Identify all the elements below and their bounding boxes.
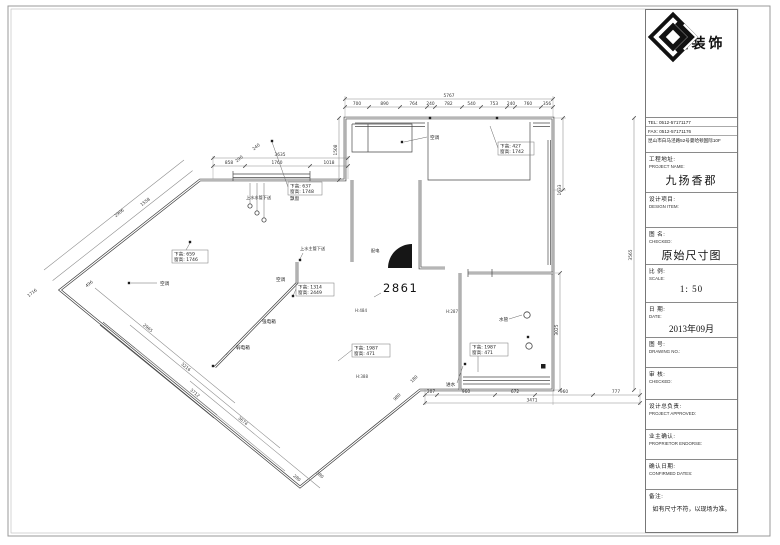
weak-current-box-label: 弱电箱 [236, 344, 250, 351]
dim-label: 1508 [333, 144, 339, 155]
dim-label: 540 [467, 101, 475, 107]
tb-row-date: 日 期: DATE: 2013年09月 [646, 302, 737, 337]
tb-row-project-name: 工程地址: PROJECT NAME: 九扬香郡 [646, 152, 737, 192]
drawing-title-value: 原始尺寸图 [649, 247, 734, 263]
scale-value: 1: 50 [649, 284, 734, 294]
dim-label: 380 [315, 470, 325, 480]
dim-label: 1760 [272, 160, 283, 166]
tb-row-proprietor-endorse: 业主确认: PROPRIETOR ENDORSE: [646, 429, 737, 459]
window-lines [100, 122, 551, 418]
tb-row-confirmed-dates: 确认日期: CONFIRMED DATES: [646, 459, 737, 489]
row-label-cn: 比 例: [649, 267, 734, 275]
title-block: 恒钻装饰 TEL: 0512-57171177 FAX: 0512-571711… [645, 9, 738, 533]
dim-label: 207 [427, 389, 435, 395]
window-sill-label: 下高: 1314 [298, 284, 322, 291]
pipe-symbol [524, 312, 530, 318]
ac-label: 空调 [430, 134, 440, 141]
window-height-label: 窗高: 471 [472, 349, 493, 356]
dim-label: 1716 [26, 287, 39, 299]
dim-label: 3025 [554, 324, 560, 335]
exterior-walls [60, 118, 553, 487]
dim-label: 3635 [275, 152, 286, 158]
dim-label: 496 [84, 279, 94, 289]
row-label-en: DRAWING NO.: [649, 349, 734, 354]
dim-label: 672 [511, 389, 519, 395]
row-label-cn: 设计项目: [649, 195, 734, 203]
company-tel: TEL: 0512-57171177 [646, 118, 737, 127]
tb-row-remark: 备注: 如有尺寸不符，以现场为准。 [646, 489, 737, 532]
row-label-cn: 业主确认: [649, 432, 734, 440]
dim-label: 290 [234, 154, 244, 164]
window-annotation: 下高: 637 窗高: 1748 飘窗 [288, 182, 322, 202]
dim-label: 180 [409, 374, 419, 384]
window-annotation: 下高: 659 窗高: 1746 [172, 250, 208, 263]
row-label-en: PROJECT APPROVED: [649, 411, 734, 416]
company-fax: FAX: 0512-57171176 [646, 127, 737, 136]
date-value: 2013年09月 [649, 322, 734, 335]
dim-label: 760 [524, 101, 532, 107]
water-inlet-label: 进水 [446, 381, 456, 388]
tb-row-drawing-no: 图 号: DRAWING NO.: [646, 337, 737, 367]
pipe-symbol [262, 218, 266, 222]
dim-label: 1633 [557, 184, 563, 195]
tb-row-checked: 审 核: CHECKED: [646, 367, 737, 399]
water-pipe-note: 上水水管下送 [246, 194, 272, 201]
dim-label: 2965 [142, 322, 154, 334]
ac-label: 空调 [276, 276, 286, 283]
dim-label: 980 [392, 392, 402, 402]
row-label-cn: 确认日期: [649, 462, 734, 470]
pipe-symbol [526, 343, 532, 349]
window-annotation: 下高: 1314 窗高: 2449 [296, 283, 334, 296]
row-label-cn: 日 期: [649, 305, 734, 313]
window-annotation: 下高: 1987 窗高: 471 [470, 343, 508, 356]
diagonal-dimensions: 1558 2906 290 240 496 1716 2965 3216 371… [26, 142, 634, 483]
bay-window-label: 飘窗 [290, 195, 300, 202]
drawing-sheet: 5767 700 890 764 240 782 540 753 240 760… [0, 0, 780, 545]
company-address: 昆山市白马泾路52号曼哈顿国际10F [646, 136, 737, 145]
strong-current-box-label: 强电箱 [262, 318, 276, 325]
pipe-symbol [248, 204, 252, 208]
dim-label: 3565 [628, 249, 634, 260]
dimension-ticks [211, 97, 642, 405]
row-label-cn: 设计总负责: [649, 402, 734, 410]
dim-label: 240 [251, 142, 261, 152]
tb-row-scale: 比 例: SCALE: 1: 50 [646, 264, 737, 302]
row-label-en: DESIGN ITEM: [649, 204, 734, 209]
row-label-en: CONFIRMED DATES: [649, 471, 734, 476]
row-label-cn: 审 核: [649, 370, 734, 378]
dim-label: 858 [225, 160, 233, 166]
dim-label: 890 [380, 101, 388, 107]
dim-label: 777 [612, 389, 620, 395]
window-sill-label: 下高: 1987 [472, 344, 496, 351]
dim-label: 356 [543, 101, 551, 107]
row-label-en: CHECKED: [649, 379, 734, 384]
dim-label: 240 [426, 101, 434, 107]
window-sill-label: 下高: 637 [290, 183, 311, 190]
tb-row-design-item: 设计项目: DESIGN ITEM: [646, 192, 737, 227]
tb-row-project-approved: 设计总负责: PROJECT APPROVED: [646, 399, 737, 429]
window-annotation: 下高: 1987 窗高: 471 [352, 344, 390, 357]
row-label-cn: 工程地址: [649, 155, 734, 163]
dim-label: 764 [409, 101, 417, 107]
dim-label: 1018 [324, 160, 335, 166]
dim-label: 782 [444, 101, 452, 107]
water-pipe-label: 水管 [499, 316, 509, 323]
window-height-label: 窗高: 2449 [298, 289, 322, 296]
dim-label: 960 [560, 389, 568, 395]
dim-label: 3216 [180, 361, 192, 373]
power-box-label: 配电 [371, 247, 380, 254]
ac-label: 空调 [160, 280, 170, 287]
water-main-note: 上水主管下送 [300, 245, 326, 252]
room-number: 2861 [383, 281, 418, 295]
dim-label: 5767 [444, 93, 455, 99]
row-label-cn: 图 号: [649, 340, 734, 348]
row-label-en: PROPRIETOR ENDORSE: [649, 441, 734, 446]
dim-label: 700 [353, 101, 361, 107]
dim-label: 2906 [113, 207, 126, 219]
dim-label: 753 [490, 101, 498, 107]
window-annotation: 下高: 427 窗高: 1742 [498, 142, 534, 155]
company-logo-section: 恒钻装饰 [646, 10, 737, 117]
dim-label: 1558 [139, 196, 152, 208]
window-sill-label: 下高: 659 [174, 251, 195, 258]
window-sill-label: 下高: 427 [500, 143, 521, 150]
tb-row-drawing-title: 图 名: CHECKED: 原始尺寸图 [646, 227, 737, 264]
row-label-en: SCALE: [649, 276, 734, 281]
remark-value: 如有尺寸不符，以现场为准。 [649, 504, 734, 513]
top-dimension-chain: 5767 700 890 764 240 782 540 753 240 760… [353, 93, 551, 107]
pipe-symbol [255, 211, 259, 215]
dim-label: 3471 [527, 398, 538, 404]
dim-label: 240 [507, 101, 515, 107]
row-label-en: CHECKED: [649, 239, 734, 244]
row-label-en: PROJECT NAME: [649, 164, 734, 169]
extension-lines [213, 96, 640, 405]
beam-height-label: H:484 [355, 308, 367, 313]
beam-height-label: H:287 [446, 309, 458, 314]
company-contact: TEL: 0512-57171177 FAX: 0512-57171176 昆山… [646, 117, 737, 152]
beam-height-label: H:388 [356, 374, 368, 379]
row-label-en: DATE: [649, 314, 734, 319]
window-height-label: 窗高: 471 [354, 350, 375, 357]
window-height-label: 窗高: 1742 [500, 148, 524, 155]
dim-label: 960 [462, 389, 470, 395]
company-logo-icon [646, 10, 700, 64]
row-label-cn: 图 名: [649, 230, 734, 238]
window-height-label: 窗高: 1748 [290, 188, 314, 195]
door-swing-symbol [388, 244, 412, 268]
sheet-inner-frame [11, 9, 738, 533]
project-name-value: 九扬香郡 [649, 172, 734, 188]
window-height-label: 窗高: 1746 [174, 256, 198, 263]
row-label-cn: 备注: [649, 492, 734, 500]
window-sill-label: 下高: 1987 [354, 345, 378, 352]
